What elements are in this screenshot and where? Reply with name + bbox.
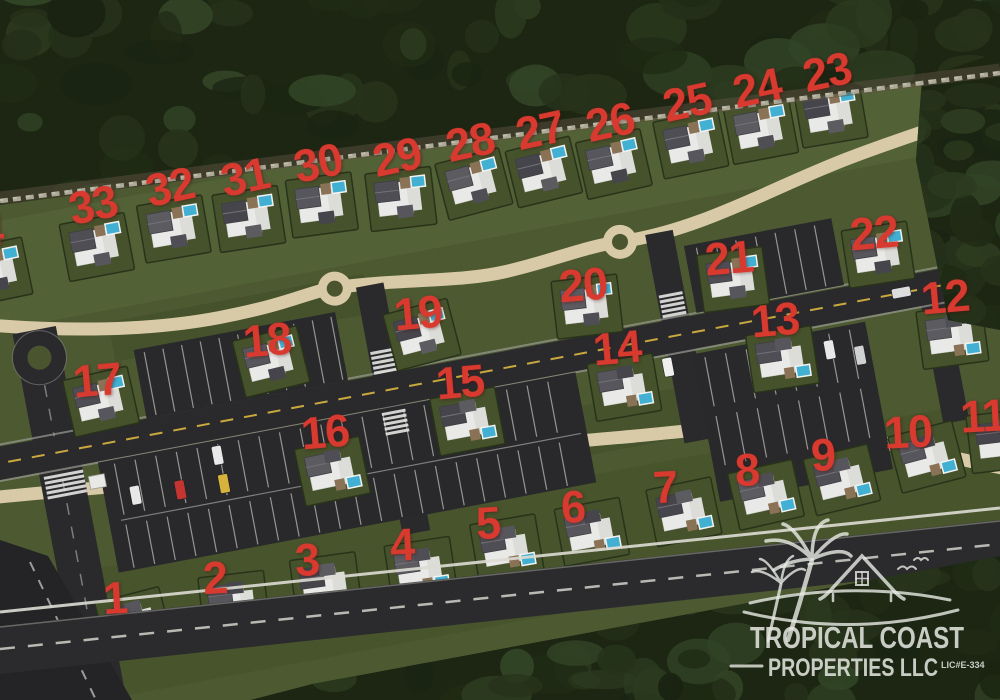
house-lot-31 <box>212 185 286 252</box>
house-lot-7 <box>646 477 722 547</box>
house-lot-22 <box>841 221 915 288</box>
house-lot-33 <box>59 212 135 281</box>
logo-license: LIC#E-334 <box>941 660 985 670</box>
house-lot-11 <box>966 408 1000 473</box>
house-lot-32 <box>136 195 211 263</box>
gate-kiosk <box>88 474 106 490</box>
site-plan-map: TROPICAL COAST PROPERTIES LLC LIC#E-334 … <box>0 0 1000 700</box>
house-lot-16 <box>294 436 370 506</box>
house-lot-15 <box>430 387 506 456</box>
logo-line2: PROPERTIES LLC <box>768 654 938 682</box>
house-lot-6 <box>554 497 630 566</box>
house-lot-20 <box>551 274 623 339</box>
aerial-render: TROPICAL COAST PROPERTIES LLC LIC#E-334 <box>0 0 1000 700</box>
house-lot-21 <box>696 246 769 312</box>
house-lot-29 <box>365 166 437 231</box>
house-lot-14 <box>587 353 662 421</box>
house-lot-30 <box>285 172 358 238</box>
house-lot-13 <box>745 326 819 393</box>
logo-line1: TROPICAL COAST <box>750 620 964 655</box>
